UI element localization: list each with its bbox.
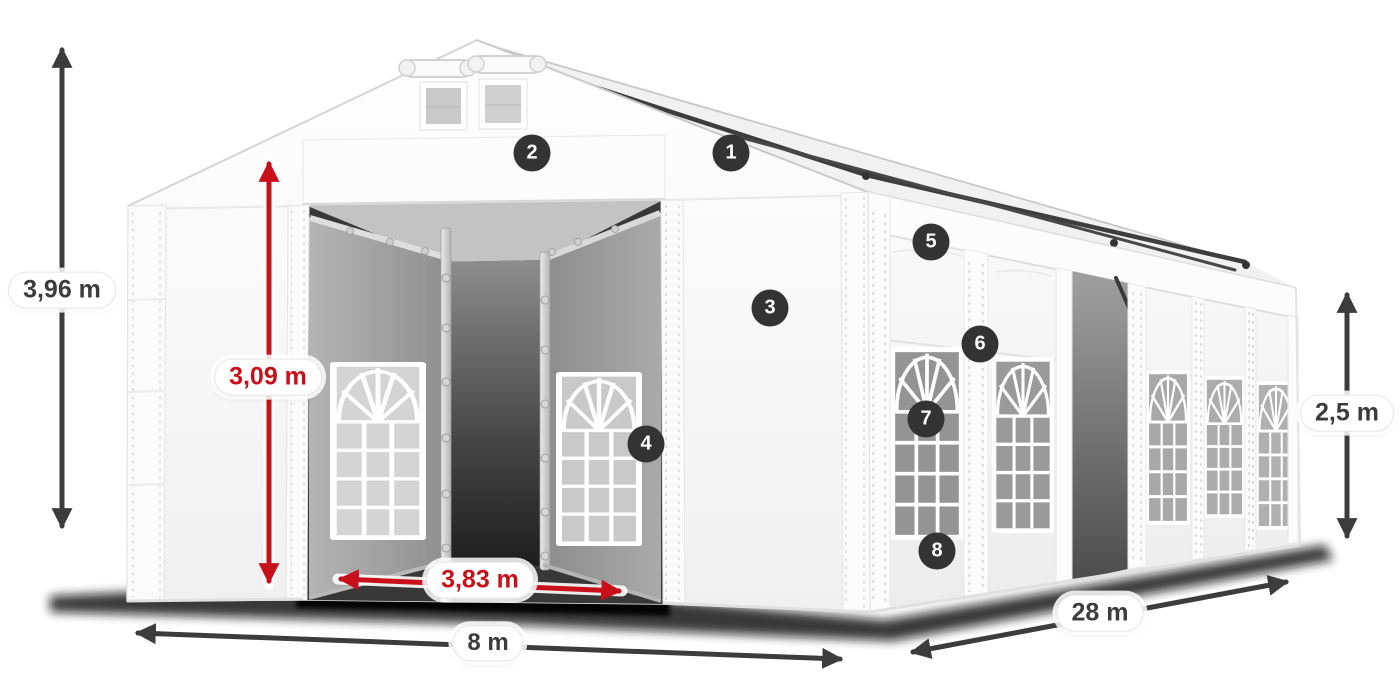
dimension-label-front-width: 8 m — [452, 625, 523, 661]
dimension-label-side-length: 28 m — [1057, 595, 1144, 632]
tent-illustration — [0, 0, 1400, 700]
dimension-label-total-height: 3,96 m — [8, 272, 116, 309]
printed-window — [330, 362, 426, 540]
door-jamb — [661, 200, 685, 605]
printed-window — [556, 372, 642, 546]
callout-badge-1[interactable]: 1 — [713, 135, 750, 172]
callout-badge-2[interactable]: 2 — [514, 135, 551, 172]
side-door-opening — [1072, 271, 1128, 581]
callout-badge-4[interactable]: 4 — [628, 426, 665, 463]
callout-badge-5[interactable]: 5 — [913, 224, 950, 261]
entrance-lintel — [303, 135, 665, 205]
side-window — [1204, 376, 1245, 518]
dimension-label-entrance-height: 3,09 m — [214, 359, 322, 396]
dimension-label-entrance-width: 3,83 m — [426, 562, 534, 599]
front-entrance-interior — [303, 200, 665, 604]
side-window — [992, 357, 1054, 533]
callout-badge-3[interactable]: 3 — [752, 290, 789, 327]
dimension-label-wall-height: 2,5 m — [1300, 395, 1394, 432]
side-window — [890, 347, 964, 540]
callout-badge-8[interactable]: 8 — [919, 533, 956, 570]
door-jamb — [286, 205, 309, 600]
callout-badge-7[interactable]: 7 — [908, 401, 945, 438]
tent-dimension-diagram: 3,96 m 3,09 m 3,83 m 8 m 28 m 2,5 m 1 2 … — [0, 0, 1400, 700]
callout-badge-6[interactable]: 6 — [962, 326, 999, 363]
side-window — [1146, 370, 1190, 525]
